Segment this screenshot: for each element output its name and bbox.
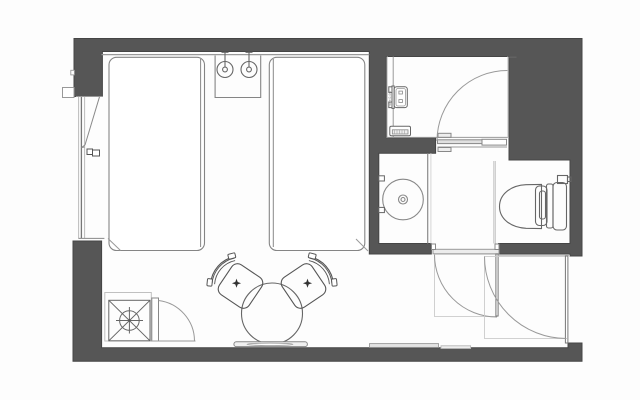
- svg-text:Safe 0.4m: Safe 0.4m: [388, 91, 392, 106]
